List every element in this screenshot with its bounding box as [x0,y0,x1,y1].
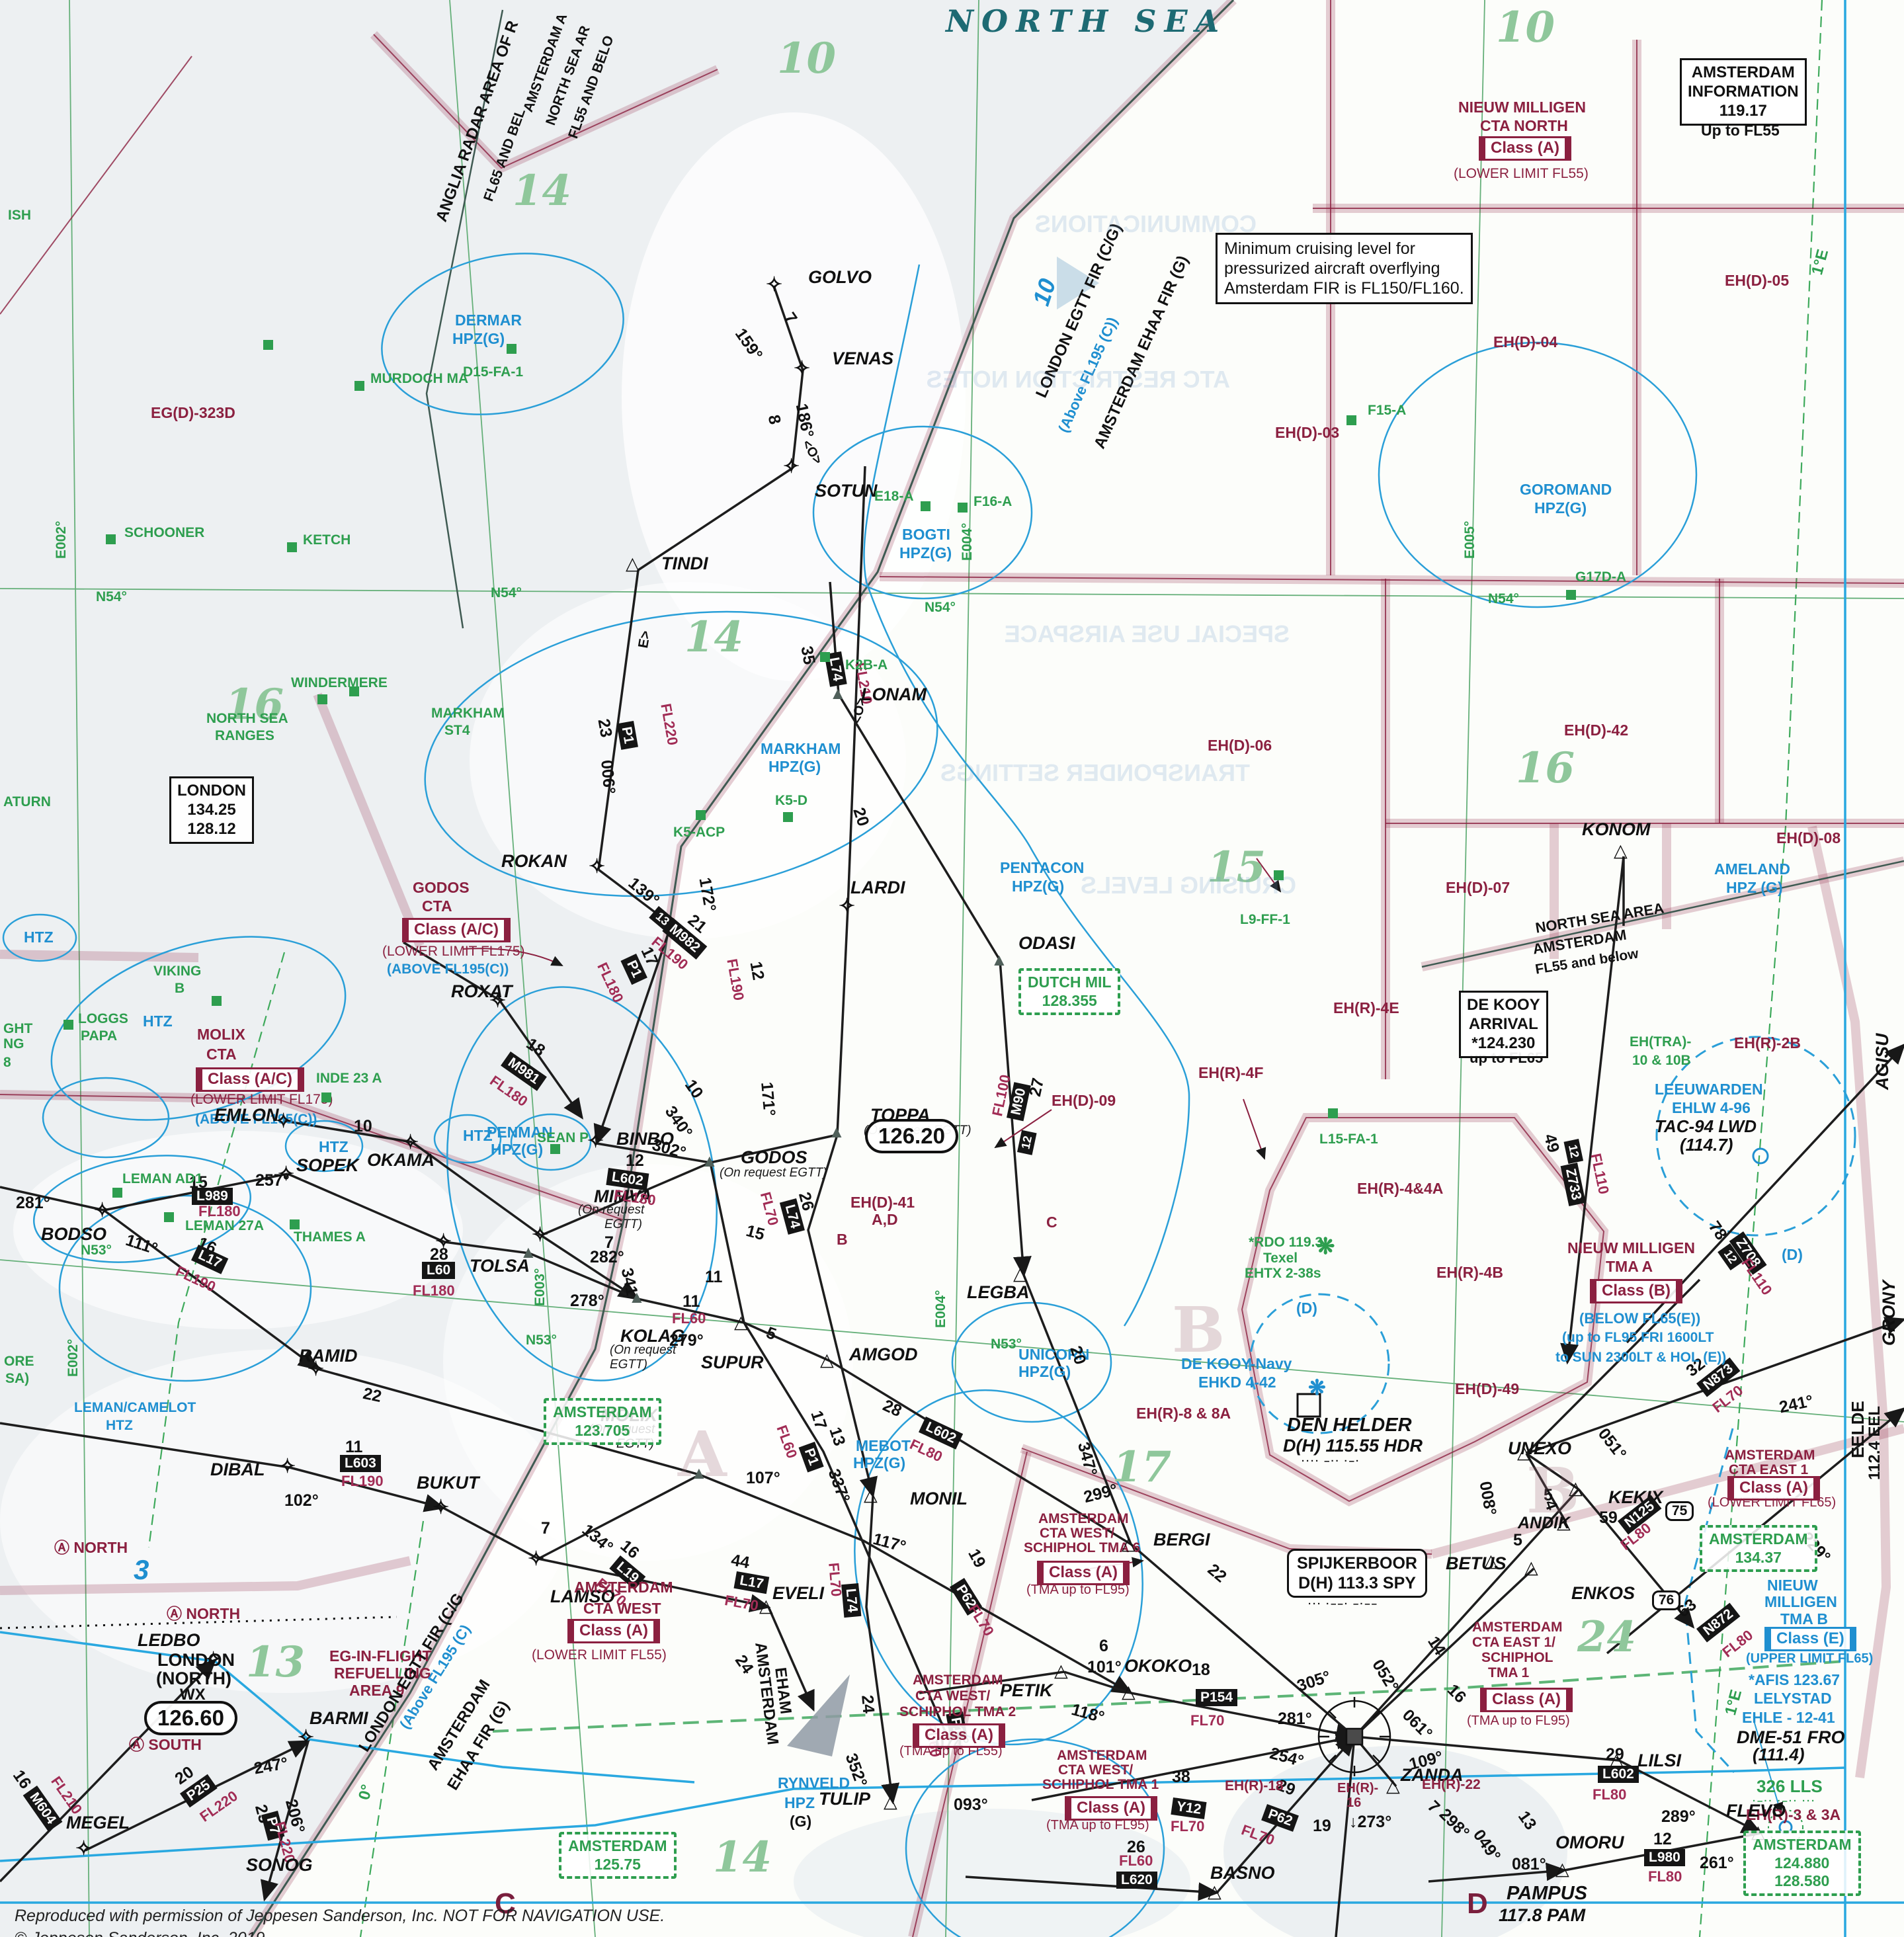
label-blu: NIEUW [1767,1577,1818,1593]
label-wpt: DEN HELDER [1287,1415,1412,1435]
cta-west-class-line: Class (A) [579,1622,648,1641]
amsterdam-13437-box-line: AMSTERDAM [1709,1530,1808,1549]
label-grn: E003° [533,1268,548,1306]
amsterdam-information-box-line: 119.17 [1688,102,1799,121]
label-fl: FL70 [826,1562,844,1597]
label-grnb: 10 [777,36,836,81]
godos-cta-class-line: Class (A/C) [414,921,499,940]
tma6-class: Class (A) [1037,1561,1130,1585]
label-num: 11 [345,1438,362,1456]
label-blu: PENTACON [1000,860,1084,876]
label-grnb: 13 [246,1640,305,1684]
label-mrn: TMA A [1606,1258,1653,1274]
label-blu: HPZ(G) [491,1141,543,1157]
label-sym-tri: △ [1557,1513,1571,1532]
min-cruising-note-line: Minimum cruising level for [1224,239,1464,259]
label-sym-trif: ▲ [991,951,1008,969]
platform-square [263,340,273,350]
label-mrn: CTA EAST 1/ [1472,1635,1555,1650]
label-wpt: EMLON [214,1106,279,1124]
label-sym-trif: ▲ [828,1123,845,1141]
label-wpt: TINDI [661,554,708,573]
label-grnb: 24 [1577,1615,1636,1659]
label-wpt: SOTUN [815,481,878,500]
label-num: 281° [1278,1710,1312,1727]
label-grn: EHTX 2-38s [1245,1266,1321,1281]
label-sym-star: ✧ [402,1132,419,1153]
label-mrnl: (LOWER LIMIT FL55) [1454,167,1589,181]
label-wpt: GODOS [741,1148,807,1167]
label-num: EELDE [1849,1401,1867,1458]
label-sym-tri: △ [1122,1682,1136,1701]
label-grn: N53° [81,1243,112,1258]
label-mrn: EH(D)-08 [1776,830,1841,846]
label-num: 59 [1599,1509,1618,1526]
label-sym-star: ✧ [587,1131,604,1152]
label-sym-tri: △ [864,1485,878,1504]
label-num: 107° [746,1469,780,1487]
label-awy: L603 [340,1455,381,1472]
label-wpt: OKAMA [367,1151,435,1169]
amsterdam-information-box-line: INFORMATION [1688,83,1799,102]
label-wpt: ODASI [1018,934,1075,952]
label-mrnl: (LOWER LIMIT FL175) [382,944,525,959]
label-blu: TMA B [1780,1611,1828,1627]
cta-east1-class: Class (A) [1727,1476,1820,1501]
label-small ital: (On request [610,1344,676,1357]
label-blu: EHKD 4-42 [1198,1374,1276,1390]
label-sym-tri: △ [734,1313,748,1331]
label-grn: N53° [526,1333,557,1348]
label-mrnl: (LOWER LIMIT FL55) [532,1648,667,1663]
label-fl: FL60 [1119,1853,1153,1868]
label-mrn: CTA WEST/ [915,1689,990,1704]
label-grn: N54° [491,586,522,600]
platform-square [321,1092,331,1102]
label-num: 171° [758,1081,778,1117]
label-sym-trif: ▲ [690,1464,708,1482]
label-wpt: SUPUR [701,1353,764,1372]
london-freq-box-line: 128.12 [177,820,246,839]
label-fl: FL80 [1648,1869,1682,1884]
label-mrn: EH(D)-05 [1725,272,1789,288]
label-grnb: 14 [513,169,571,213]
label-num: 24 [858,1694,878,1714]
label-blu: to SUN 2300LT & HOL (E)) [1555,1350,1726,1365]
label-grn: NORTH SEA [206,712,288,726]
label-mrn: CTA NORTH [1480,118,1568,134]
neatline-corner-letter: D [1467,1889,1488,1919]
label-sym-tri: △ [1524,1558,1538,1577]
spijkerboor-vor-box: SPIJKERBOORD(H) 113.3 SPY [1287,1549,1427,1598]
attribution-line: © Jeppesen Sanderson, Inc. 2019 [15,1930,265,1937]
label-sym-star: ✧ [435,1231,452,1253]
label-awy: L980 [1644,1849,1685,1866]
label-num: 289° [1661,1808,1696,1825]
label-wpts: TAC-94 LWD [1655,1118,1757,1135]
label-grnb: 14 [684,615,743,659]
label-sym-tri: △ [626,554,640,573]
label-blu: DERMAR [455,312,522,328]
label-wpt: LILSI [1637,1751,1681,1770]
label-grn: D15-FA-1 [463,365,523,380]
platform-square [820,652,830,662]
amsterdam-information-box-line: AMSTERDAM [1688,63,1799,83]
label-grn: RANGES [215,729,274,743]
label-num: 102° [284,1492,319,1509]
label-mrn: EH(D)-42 [1564,722,1628,738]
label-sym-star: ✧ [794,358,810,380]
label-wpt: KONOM [1582,820,1651,839]
cta-east-tma1-class: Class (A) [1480,1688,1573,1712]
dutch-mil-box-line: 128.355 [1028,992,1111,1010]
label-fl: FL70 [1190,1713,1224,1728]
min-cruising-note-line: pressurized aircraft overflying [1224,259,1464,278]
label-grnb: 10 [1496,5,1555,50]
label-mrn: EH(R)-4E [1333,1000,1399,1016]
label-grn: MURDOCH MA [370,372,468,386]
label-wpt: TULIP [819,1790,870,1808]
min-cruising-note-line: Amsterdam FIR is FL150/FL160. [1224,278,1464,298]
label-blu: EHLW 4-96 [1672,1100,1751,1116]
label-mrn: EH(R)-2B [1734,1035,1801,1051]
label-blu: (D) [1296,1300,1317,1316]
amsterdam-13437-box: AMSTERDAM134.37 [1700,1525,1817,1572]
dekooy-arrival-box-line: ARRIVAL [1467,1015,1540,1034]
label-grn: INDE 23 A [316,1071,382,1086]
godos-cta-class: Class (A/C) [402,918,511,942]
label-grn: 8 [3,1055,11,1070]
label-sym-tri: △ [1208,1882,1221,1901]
label-blu: LEEUWARDEN [1655,1081,1763,1097]
label-num: 281° [16,1194,50,1212]
label-mrn: CTA [422,898,452,914]
label-hex: 75 [1665,1501,1694,1521]
label-wpt: PAMPUS [1507,1883,1587,1903]
label-grn: GHT [3,1022,32,1036]
platform-square [290,1219,300,1229]
label-mrn: NIEUW MILLIGEN [1567,1240,1695,1256]
label-wpt: EVELI [772,1584,824,1602]
label-sym-tri: △ [884,1792,897,1811]
label-mrn: EH(R)-22 [1422,1778,1481,1792]
label-wpt: 117.8 PAM [1499,1906,1585,1924]
label-num: 261° [1700,1854,1734,1872]
label-grn: KETCH [303,533,351,548]
label-mrn: EG(D)-323D [151,405,235,421]
label-mrn: AMSTERDAM [1038,1512,1129,1526]
label-blu: HPZ(G) [1534,500,1587,516]
label-blu: HPZ [784,1795,815,1811]
label-num: 278° [570,1292,604,1309]
label-grn: ATURN [3,795,51,809]
label-sym-tri: △ [1610,1750,1624,1768]
label-grn: E005° [1463,521,1477,559]
label-blu: RYNVELD [778,1775,850,1791]
label-small ital: EGTT) [604,1218,642,1231]
platform-square [1328,1108,1338,1118]
label-mrnl: (TMA up to FL95) [1046,1819,1149,1833]
label-grn: L9-FF-1 [1240,913,1290,927]
label-morse: ···· –·· ·–· [1302,1456,1360,1467]
platform-square [1566,590,1576,600]
amsterdam-12575-box-line: AMSTERDAM [568,1837,667,1856]
label-wpt: OMORU [1555,1833,1624,1852]
label-num: 12 [1653,1831,1672,1848]
label-grn: ISH [8,208,31,223]
label-awy: L74 [841,1583,861,1618]
tma1-class-line: Class (A) [1077,1799,1145,1818]
label-wpt: ROKAN [501,852,567,870]
label-blu: HPZ(G) [853,1455,905,1471]
label-num: 10 [354,1118,372,1135]
title-north-sea: NORTH SEA [946,5,1227,37]
label-bleed: SPECIAL USE AIRSPACE [1005,622,1290,647]
label-mrn: EH(R)-4B [1436,1264,1503,1280]
label-num: 23 [595,718,615,739]
amsterdam-124880-box-line: 124.880 [1753,1854,1852,1873]
label-grn: F15-A [1368,403,1406,418]
label-wpt: BASNO [1210,1864,1275,1882]
label-grn: L15-FA-1 [1319,1132,1378,1147]
label-num: 11 [683,1293,700,1310]
label-mrn: NIEUW MILLIGEN [1458,99,1586,115]
label-mrn: MOLIX [197,1026,245,1042]
label-num: ↓273° [1349,1813,1391,1831]
label-mrn: EH(D)-06 [1208,737,1272,753]
label-mrn: EH(D)-07 [1446,880,1510,895]
label-bleed: ATC RESTRICTION NOTES [927,367,1230,392]
label-mrn: A,D [872,1212,898,1227]
label-mrn: CTA EAST 1 [1729,1463,1808,1477]
london-freq-box-line: LONDON [177,782,246,801]
label-grn: N54° [96,590,127,604]
label-sym-trif: ▲ [628,1288,645,1306]
platform-square [212,996,222,1006]
label-grn: EH(TRA)- [1630,1035,1691,1050]
label-wpt: MEGEL [66,1813,130,1832]
nm-tma-b-class-line: Class (E) [1776,1629,1844,1649]
label-sym-star: ✧ [205,1649,222,1670]
label-wpt: BARMI [310,1709,368,1727]
label-grnb: 16 [1516,746,1575,790]
label-blu: MARKHAM [761,741,841,757]
label-wpt: SOPEK [296,1156,359,1175]
label-wpt: BUKUT [417,1473,479,1492]
label-grn: K5-D [775,794,807,808]
label-num: 35 [798,645,818,666]
label-wpt: LEDBO [138,1631,200,1649]
label-blu: AMELAND [1714,861,1790,877]
label-mrn: SCHIPHOL TMA 2 [899,1705,1016,1719]
label-mrn: GODOS [413,880,470,895]
label-sym-star: ✧ [489,991,506,1012]
label-sym-star: ✧ [75,1838,92,1860]
label-wpt: DIBAL [210,1460,265,1479]
label-wpt: BODSO [41,1225,106,1243]
amsterdam-124880-box: AMSTERDAM124.880128.580 [1743,1831,1861,1896]
label-blu: HPZ(G) [1012,878,1064,894]
label-grn: ❋ [1316,1235,1335,1259]
label-fl: FL180 [198,1204,241,1219]
label-blu: (up to FL95 FRI 1600LT [1562,1331,1714,1345]
label-mrn: C [1046,1214,1057,1230]
label-wpt: AMGOD [849,1345,918,1364]
label-fl: FL80 [1593,1787,1626,1802]
cta-east-tma1-class-line: Class (A) [1492,1690,1561,1710]
amsterdam-13437-box-line: 134.37 [1709,1549,1808,1567]
label-num: 101° [1087,1659,1122,1676]
label-blu: *AFIS 123.67 [1749,1672,1840,1688]
london-north-wx-freq: 126.60 [144,1701,237,1735]
label-blu: MEBOT [856,1438,911,1454]
label-mrn: CTA WEST/ [1058,1763,1133,1778]
label-blu: (UPPER LIMIT FL65) [1746,1652,1873,1666]
label-grnb: 17 [1112,1445,1171,1489]
label-mrn: EH(D)-09 [1052,1092,1116,1108]
label-mrn: Ⓐ NORTH [54,1540,128,1555]
platform-square [106,534,116,544]
enroute-chart: NORTH SEA1010141416161517241314310ISHANG… [0,0,1904,1937]
label-sym-star: ✧ [279,1456,296,1477]
label-wpts: (114.7) [1680,1136,1733,1154]
label-grn: G17D-A [1575,570,1626,585]
label-grn: SEAN P [537,1131,589,1145]
label-wpt: LONAM [861,685,927,704]
label-blu: HTZ [143,1013,173,1029]
label-wpt: GOLVO [808,268,872,286]
tma1-class: Class (A) [1065,1796,1157,1821]
amsterdam-12575-box-line: 125.75 [568,1856,667,1874]
label-sym-trif: ▲ [520,1243,537,1261]
label-blu: HTZ [319,1139,349,1155]
label-small ital: (On request EGTT) [720,1167,827,1180]
amsterdam-124880-box-line: AMSTERDAM [1753,1836,1852,1854]
label-mrn: Ⓐ SOUTH [129,1737,202,1752]
amsterdam-wx-freq: 126.20 [865,1119,958,1153]
label-num: 093° [954,1796,988,1813]
label-mrn: AMSTERDAM [913,1673,1003,1688]
label-grn: THAMES A [294,1230,366,1245]
label-sym-star: ✧ [433,1497,449,1518]
dekooy-arrival-box-line: DE KOOY [1467,996,1540,1015]
label-num: LONDON [157,1651,235,1669]
label-num: 22 [362,1385,384,1405]
amsterdam-12575-box: AMSTERDAM125.75 [559,1832,677,1879]
label-num: 112.4 EEL [1866,1406,1883,1480]
label-sym-star: ✧ [839,896,855,917]
nm-tma-a-class-line: Class (B) [1602,1282,1671,1301]
label-morse: ··· ·––· –·–– [1308,1599,1378,1610]
platform-square [921,501,931,511]
label-num: 282° [590,1249,624,1266]
label-wpt: AGISU [1873,1033,1891,1090]
label-ghost: B [1172,1298,1225,1364]
label-wpt: OKOKO [1124,1657,1192,1675]
label-grn: Texel [1263,1251,1298,1266]
label-sym-star: ✧ [528,1549,544,1570]
platform-square [354,381,364,391]
label-sym-star: ✧ [308,1359,324,1380]
label-mrn: AMSTERDAM [1472,1620,1563,1635]
label-awy: L620 [1116,1872,1157,1889]
label-mrn: Ⓐ NORTH [167,1606,240,1622]
dekooy-arrival-box: DE KOOYARRIVAL*124.230 [1459,991,1548,1058]
platform-square [317,694,327,704]
label-sym-star: ✧ [94,1200,110,1221]
label-wpt: GRONY [1880,1280,1898,1346]
label-mrn: 16 [1346,1796,1361,1810]
molix-cta-class-line: Class (A/C) [208,1070,292,1089]
label-blu: EHLE - 12-41 [1742,1710,1835,1725]
label-awy: L60 [422,1262,455,1279]
label-mrn: EH(D)-03 [1275,425,1339,440]
label-num: 18 [1192,1661,1210,1678]
cta-north-class-line: Class (A) [1491,139,1559,158]
label-wpt: PETIK [1000,1681,1053,1700]
nm-tma-b-class: Class (E) [1764,1627,1856,1651]
label-mrn: SCHIPHOL TMA 1 [1042,1778,1159,1792]
spijkerboor-vor-box-line: D(H) 113.3 SPY [1297,1573,1417,1593]
platform-square [958,503,968,513]
label-mrn: CTA [206,1046,237,1062]
label-num: 19 [1313,1817,1331,1834]
label-grn: N53° [991,1337,1022,1352]
label-num: 38 [1172,1768,1190,1786]
label-grn: ORE [4,1354,34,1369]
label-wpt: BERGI [1153,1530,1210,1549]
label-blu: LEMAN/CAMELOT [74,1401,196,1415]
dutch-mil-box: DUTCH MIL128.355 [1018,968,1120,1015]
label-blub: 3 [134,1555,149,1585]
label-sym-tri: △ [1386,1776,1400,1795]
label-sym-tri: △ [820,1350,834,1369]
platform-square [696,810,706,820]
platform-square [112,1188,122,1198]
label-sym-tri: △ [1569,1479,1583,1497]
platform-square [1346,415,1356,425]
tma2-class: Class (A) [913,1723,1005,1748]
label-blu: HPZ(G) [1018,1364,1071,1380]
label-mrn: EH(R)-4&4A [1357,1180,1443,1196]
label-num: 081° [1512,1856,1546,1873]
label-grn: E002° [66,1339,81,1377]
label-grn: PAPA [81,1029,117,1044]
london-freq-box-line: 134.25 [177,801,246,820]
label-num: 27 [1026,1077,1047,1098]
label-num: (G) [790,1813,811,1829]
label-sym-trif: ▲ [829,684,847,702]
amsterdam-123705-box-line: AMSTERDAM [553,1403,652,1422]
amsterdam-information-box: AMSTERDAMINFORMATION119.17 [1680,58,1807,126]
label-sym-trif: ▲ [701,1152,718,1170]
label-blu: HTZ [463,1128,493,1143]
label-mrn: AMSTERDAM [1057,1749,1147,1763]
attribution-line: Reproduced with permission of Jeppesen S… [15,1907,665,1924]
label-wpt: D(H) 115.55 HDR [1283,1436,1423,1455]
label-grn: K5-ACP [673,825,725,840]
label-grn: LEMAN AD1 [122,1172,203,1186]
label-blu: HPZ(G) [768,759,821,774]
label-mrn: EH(R)-8 & 8A [1136,1405,1231,1421]
label-bleed: CRUISING LEVELS [1081,873,1296,898]
label-grn: VIKING [153,964,201,979]
label-fl: FL180 [413,1283,455,1298]
label-num: 12 [747,960,767,981]
platform-square [287,542,297,552]
label-blu: (ABOVE FL195(C)) [387,962,509,977]
label-grn: 10 & 10B [1632,1053,1691,1068]
